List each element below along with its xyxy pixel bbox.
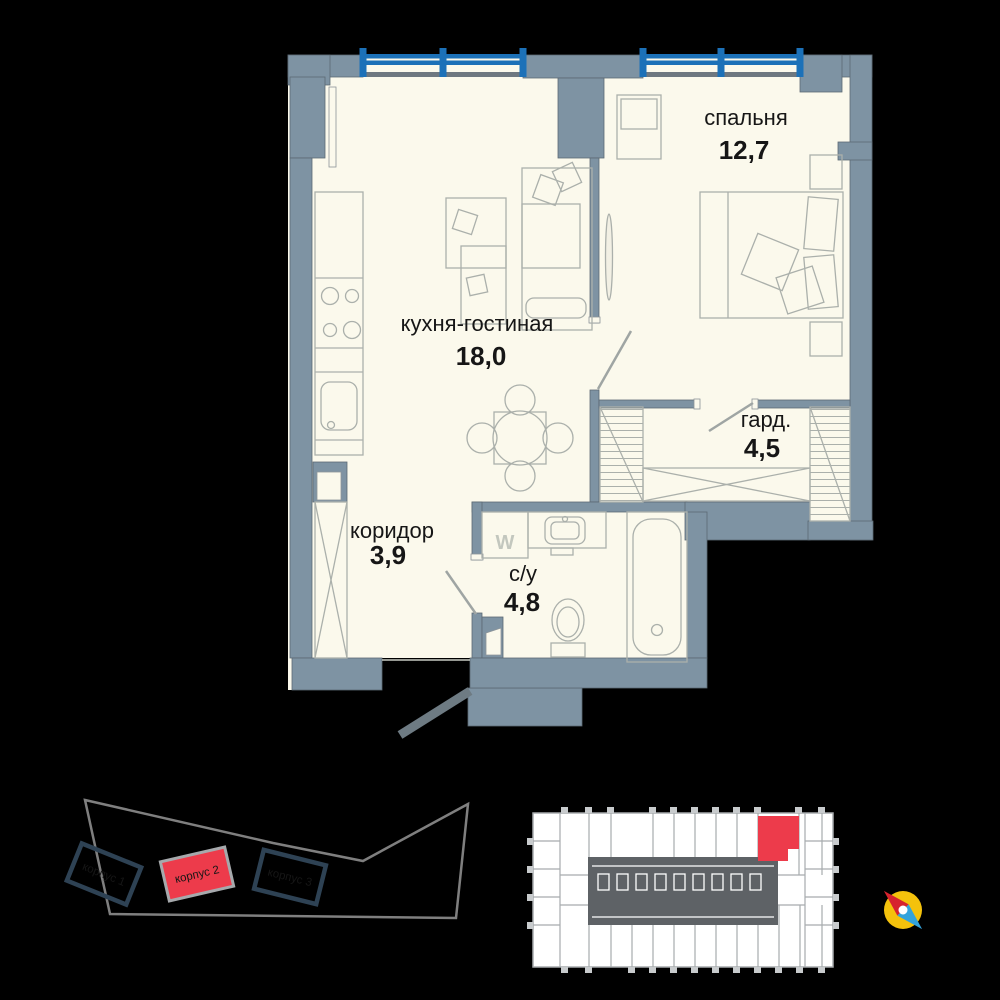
room-area-kitchen: 18,0 xyxy=(456,341,507,371)
building-korpus-1[interactable]: корпус 1 xyxy=(67,843,141,904)
exterior-block xyxy=(468,688,582,726)
window-mullion xyxy=(640,48,647,77)
window-mullion xyxy=(520,48,527,77)
site-plan: корпус 1 корпус 2 корпус 3 xyxy=(67,800,468,918)
window-mullion xyxy=(440,48,447,77)
compass-icon xyxy=(870,877,935,942)
site-boundary xyxy=(85,800,468,918)
window-mullion xyxy=(360,48,367,77)
room-area-bedroom: 12,7 xyxy=(719,135,770,165)
room-label-kitchen: кухня-гостиная xyxy=(401,311,554,336)
dining-table xyxy=(493,411,547,465)
washer-label: W xyxy=(496,532,515,554)
apartment-floor-plan: кухня-гостиная 18,0 спальня 12,7 гард. 4… xyxy=(288,48,873,735)
entrance-door-leaf xyxy=(400,691,470,735)
tv xyxy=(606,214,613,300)
room-area-corridor: 3,9 xyxy=(370,540,406,570)
window-mullion xyxy=(797,48,804,77)
svg-text:корпус 3: корпус 3 xyxy=(266,867,313,890)
plan-canvas: кухня-гостиная 18,0 спальня 12,7 гард. 4… xyxy=(0,0,1000,1000)
building-korpus-2[interactable]: корпус 2 xyxy=(160,847,233,901)
room-area-wardrobe: 4,5 xyxy=(744,433,780,463)
window-mullion xyxy=(718,48,725,77)
balcony-door-leaf xyxy=(329,87,336,167)
core-block xyxy=(588,857,778,925)
room-label-bedroom: спальня xyxy=(704,105,788,130)
room-label-wardrobe: гард. xyxy=(741,407,791,432)
floor-overview-plan xyxy=(527,807,839,973)
building-korpus-3[interactable]: корпус 3 xyxy=(254,850,326,904)
room-label-bathroom: с/у xyxy=(509,561,537,586)
room-area-bathroom: 4,8 xyxy=(504,587,540,617)
